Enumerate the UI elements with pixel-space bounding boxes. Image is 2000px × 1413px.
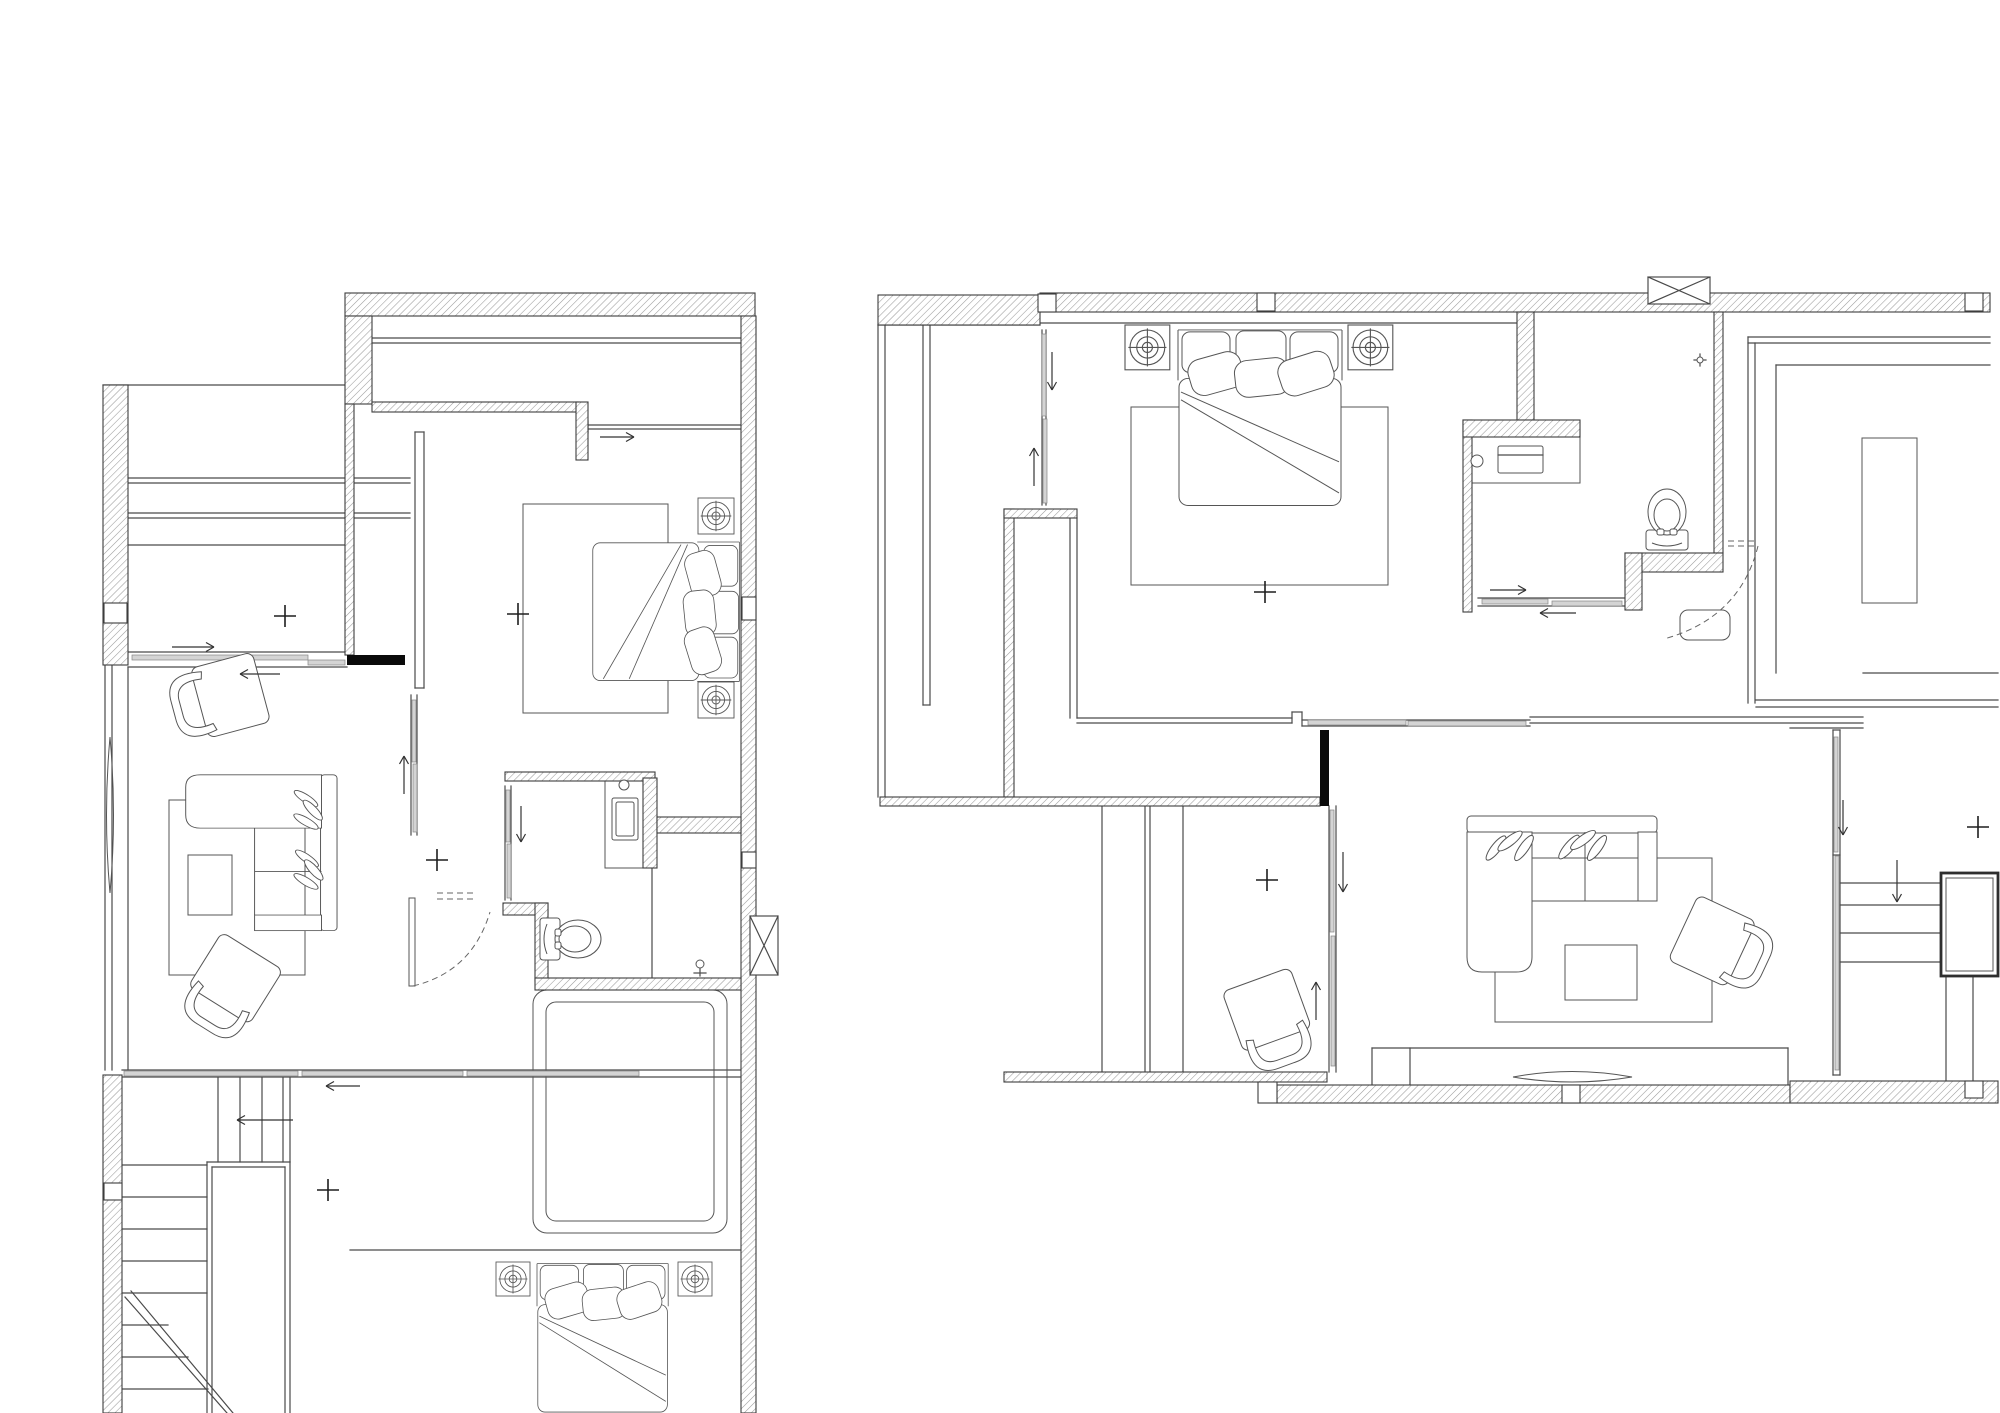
sliding-panel — [308, 660, 345, 665]
wall-opening-box — [104, 603, 127, 623]
fixture-circle — [619, 780, 629, 790]
corner-sofa-symbol — [186, 775, 337, 931]
arrow-head — [1048, 382, 1053, 390]
ceiling-speaker-symbol — [698, 682, 734, 718]
arrow-head — [1034, 448, 1039, 456]
furniture-outline — [616, 802, 634, 836]
sliding-panel — [124, 1071, 298, 1076]
floor-plan-drawing — [0, 0, 2000, 1413]
ceiling-speaker-symbol — [1125, 325, 1170, 370]
detail-path — [1513, 1072, 1632, 1083]
armchair-symbol — [164, 652, 271, 745]
wall-solid-segment — [1320, 730, 1329, 806]
furniture-outline — [1565, 945, 1637, 1000]
sliding-panel — [1408, 721, 1526, 726]
floor-plan-canvas — [0, 0, 2000, 1413]
corner-sofa-symbol — [1467, 816, 1657, 972]
ceiling-speaker-symbol — [1348, 325, 1393, 370]
arrow-head — [1540, 609, 1548, 614]
left-floor-plan — [103, 293, 778, 1413]
wall-hatched-segment — [1625, 553, 1642, 610]
wall-opening-box — [104, 1183, 122, 1200]
wall-hatched-segment — [345, 404, 354, 655]
sliding-panel — [1482, 599, 1548, 604]
arrow-head — [1343, 884, 1348, 892]
wall-hatched-segment — [103, 1075, 122, 1413]
furniture-outline — [533, 990, 727, 1233]
door-swing-arc — [413, 912, 490, 986]
sliding-panel — [1552, 601, 1622, 606]
arrow-head — [400, 756, 405, 764]
ceiling-speaker-symbol — [698, 498, 734, 534]
arrow-head — [1518, 586, 1526, 591]
sliding-panel — [1834, 737, 1838, 852]
arrow-head — [1839, 827, 1844, 835]
wall-hatched-segment — [878, 295, 1040, 325]
arrow-head — [1030, 448, 1035, 456]
arrow-head — [1052, 382, 1057, 390]
sliding-panel — [1308, 720, 1406, 725]
arrow-head — [206, 643, 214, 648]
wall-hatched-segment — [1714, 312, 1723, 553]
wall-opening-box — [742, 852, 756, 868]
furniture-outline — [546, 1002, 714, 1221]
sliding-panel — [413, 764, 417, 832]
sliding-panel — [1043, 419, 1047, 503]
sliding-panel — [132, 655, 308, 660]
arrow-head — [521, 834, 526, 842]
wall-hatched-segment — [1277, 1085, 1790, 1103]
sliding-panel — [1042, 334, 1046, 416]
wall-opening-box — [742, 597, 756, 620]
sliding-panel — [302, 1071, 463, 1076]
wall-hatched-segment — [880, 797, 1320, 806]
wall-opening-box — [1965, 293, 1983, 311]
wall-hatched-segment — [643, 778, 657, 868]
sliding-panel — [412, 700, 416, 762]
arrow-head — [326, 1082, 334, 1087]
plan-line — [131, 1291, 233, 1413]
furniture-outline — [1470, 437, 1580, 483]
arrow-head — [206, 647, 214, 652]
sliding-panel — [507, 844, 511, 898]
wall-solid-segment — [347, 655, 405, 665]
arrow-head — [237, 1116, 245, 1121]
wall-hatched-segment — [535, 978, 741, 990]
wall-hatched-segment — [1004, 509, 1014, 797]
sliding-panel — [467, 1071, 639, 1076]
armchair-symbol — [1668, 895, 1781, 999]
arrow-head — [1316, 982, 1321, 990]
wall-hatched-segment — [345, 316, 372, 404]
wall-opening-box — [1257, 293, 1275, 311]
furniture-outline — [1498, 446, 1543, 473]
arrow-head — [626, 433, 634, 438]
wall-opening-box — [1038, 294, 1056, 312]
furniture-outline — [605, 778, 643, 868]
furniture-outline — [1946, 878, 1993, 971]
wall-hatched-segment — [505, 772, 655, 781]
arrow-head — [626, 437, 634, 442]
wall-hatched-segment — [1463, 420, 1472, 612]
toilet-symbol — [540, 918, 601, 960]
arrow-head — [237, 1120, 245, 1125]
stair-landing-outline — [1941, 873, 1998, 976]
furniture-outline — [1862, 438, 1917, 603]
wall-hatched-segment — [1004, 509, 1077, 518]
wall-hatched-segment — [345, 293, 755, 316]
ceiling-speaker-symbol — [678, 1262, 712, 1296]
furniture-outline — [409, 898, 415, 986]
wall-opening-box — [1562, 1085, 1580, 1103]
wall-hatched-segment — [657, 817, 741, 833]
plans-root — [103, 277, 1998, 1413]
fixture-circle — [696, 960, 704, 968]
arrow-head — [404, 756, 409, 764]
arrow-head — [1843, 827, 1848, 835]
wall-opening-box — [1258, 1082, 1277, 1103]
double-bed-symbol — [1178, 330, 1342, 506]
wall-hatched-segment — [576, 402, 588, 460]
wall-hatched-segment — [372, 402, 578, 412]
furniture-outline — [1680, 610, 1730, 640]
wall-opening-box — [1965, 1081, 1983, 1098]
arrow-head — [1518, 590, 1526, 595]
arrow-head — [1312, 982, 1317, 990]
wall-hatched-segment — [1517, 312, 1534, 420]
double-bed-symbol — [537, 1264, 668, 1412]
sliding-panel — [1331, 936, 1335, 1066]
fixture-circle — [1697, 357, 1703, 363]
sliding-panel — [1330, 810, 1334, 932]
fixture-circle — [1471, 455, 1483, 467]
wall-hatched-segment — [1463, 420, 1580, 437]
right-floor-plan — [878, 277, 1998, 1103]
arrow-head — [326, 1086, 334, 1091]
arrow-head — [1339, 884, 1344, 892]
armchair-symbol — [1222, 967, 1321, 1077]
arrow-head — [517, 834, 522, 842]
sliding-panel — [506, 790, 510, 842]
arrow-head — [1897, 894, 1902, 902]
wall-hatched-segment — [1040, 293, 1990, 312]
sliding-panel — [1835, 856, 1839, 1070]
double-bed-symbol — [593, 542, 740, 681]
armchair-symbol — [174, 932, 283, 1047]
toilet-symbol — [1646, 489, 1688, 550]
furniture-outline — [188, 855, 232, 915]
ceiling-speaker-symbol — [496, 1262, 530, 1296]
wall-hatched-segment — [1004, 1072, 1327, 1082]
arrow-head — [1540, 613, 1548, 618]
arrow-head — [1893, 894, 1898, 902]
